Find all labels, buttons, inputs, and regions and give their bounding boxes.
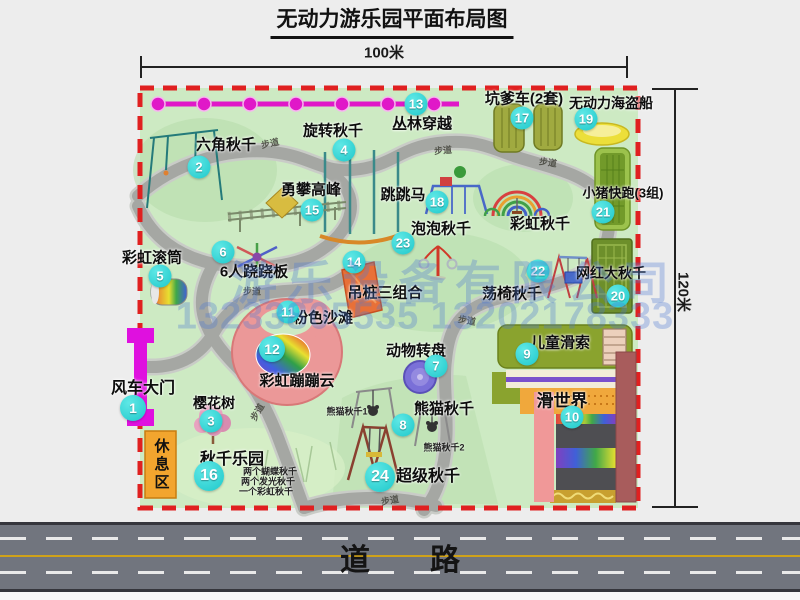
road: 道 路 [0,522,800,592]
width-dimension-label: 100米 [364,42,404,63]
rainbow-swing-label: 彩虹秋千 [510,213,570,234]
jungle-crossing-badge: 13 [405,93,428,116]
page-title: 无动力游乐园平面布局图 [271,3,514,39]
rotating-swing-label: 旋转秋千 [303,120,363,141]
rest-area-label: 休息区 [151,438,172,492]
super-swing-badge: 24 [365,462,395,492]
windmill-gate-badge: 1 [120,395,146,421]
footpath-label-2: 步道 [433,143,452,158]
big-swing-label: 网红大秋千 [576,263,646,283]
hanging-post-combo-badge: 14 [343,251,366,274]
slide-world-badge: 10 [561,406,584,429]
top-dimension-line [141,66,627,68]
hex-swing-label: 六角秋千 [196,134,256,155]
animal-carousel-badge: 7 [425,355,448,378]
panda-swing-1-label: 熊猫秋千1 [326,405,367,418]
pink-beach-label: 粉色沙滩 [293,307,353,328]
windmill-gate-label: 风车大门 [111,374,175,398]
kids-zipline-badge: 9 [516,343,539,366]
six-person-seesaw-badge: 6 [212,241,235,264]
panda-swing-badge: 8 [392,414,415,437]
rotating-swing-badge: 4 [333,139,356,162]
bubble-swing-badge: 23 [392,232,415,255]
swing-park-badge: 16 [194,461,224,491]
rainbow-bounce-cloud-label: 彩虹蹦蹦云 [259,370,334,391]
kengdie-cart-badge: 17 [511,107,534,130]
jungle-crossing-label: 丛林穿越 [392,113,452,134]
rainbow-bounce-cloud-badge: 12 [259,336,285,362]
piggy-run-badge: 21 [592,201,615,224]
road-label: 道 路 [340,535,460,579]
peak-climbing-badge: 15 [301,199,324,222]
panda-swing-2-label: 熊猫秋千2 [423,441,464,454]
kengdie-cart-label: 坑爹车(2套) [485,88,563,109]
top-dimension-tick-right [626,56,628,78]
hanging-post-combo-label: 吊桩三组合 [347,282,422,303]
park-plan-screenshot: { "title": "无动力游乐园平面布局图", "dim_width": "… [0,0,800,600]
rocking-chair-swing-badge: 22 [527,260,550,283]
cherry-tree-badge: 3 [200,410,223,433]
top-dimension-tick-left [140,56,142,78]
height-dimension-label: 120米 [674,272,695,312]
panda-swing-label: 熊猫秋千 [414,398,474,419]
kids-zipline-label: 儿童滑索 [530,332,590,353]
bubble-swing-label: 泡泡秋千 [411,218,471,239]
rocking-chair-swing-label: 荡椅秋千 [482,283,542,304]
right-dimension-tick-bottom [652,506,698,508]
piggy-run-label: 小猪快跑(3组) [583,183,664,202]
big-swing-badge: 20 [607,285,630,308]
swing-note-3: 一个彩虹秋千 [239,485,293,498]
pink-beach-badge: 11 [277,301,300,324]
jumping-horse-label: 跳跳马 [380,184,425,205]
super-swing-label: 超级秋千 [396,462,460,486]
jumping-horse-badge: 18 [426,191,449,214]
footpath-label-4: 步道 [243,285,261,298]
right-dimension-tick-top [652,88,698,90]
rainbow-roller-badge: 5 [149,265,172,288]
pirate-ship-badge: 19 [575,108,598,131]
hex-swing-badge: 2 [188,156,211,179]
six-person-seesaw-label: 6人跷跷板 [220,261,288,282]
rainbow-roller-label: 彩虹滚筒 [122,247,182,268]
peak-climbing-label: 勇攀高峰 [281,179,341,200]
footpath-label-3: 步道 [538,154,558,169]
